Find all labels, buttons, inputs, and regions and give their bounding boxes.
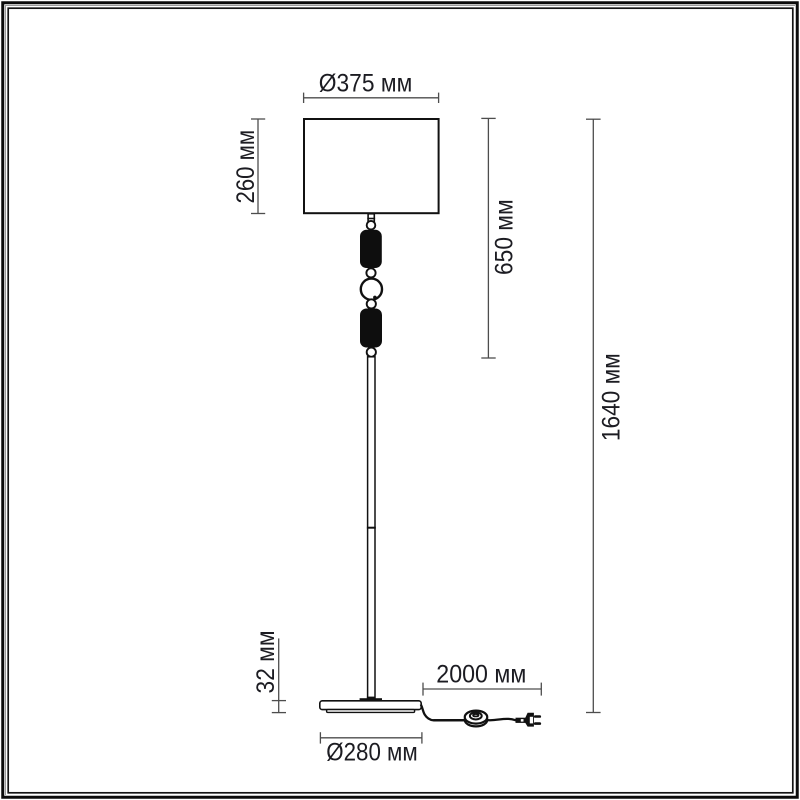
svg-text:2000 мм: 2000 мм: [436, 661, 526, 689]
svg-text:650 мм: 650 мм: [490, 199, 518, 275]
svg-text:260 мм: 260 мм: [232, 130, 260, 204]
svg-text:32 мм: 32 мм: [252, 631, 280, 694]
svg-text:1640 мм: 1640 мм: [597, 353, 625, 441]
svg-text:Ø375 мм: Ø375 мм: [319, 70, 413, 98]
svg-text:Ø280 мм: Ø280 мм: [326, 738, 418, 766]
